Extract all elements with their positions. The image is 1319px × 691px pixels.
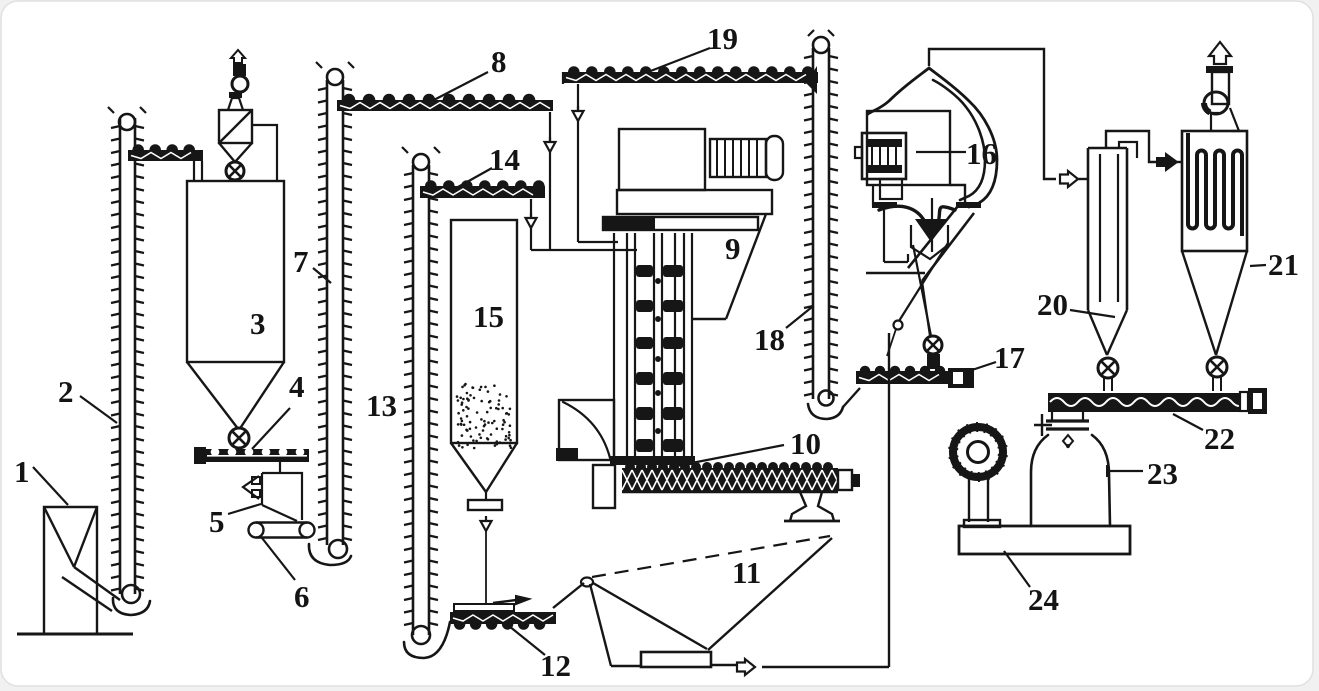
svg-text:7: 7 [293,244,309,279]
svg-text:3: 3 [250,306,266,341]
svg-text:18: 18 [754,322,785,357]
svg-text:19: 19 [707,21,738,56]
svg-text:10: 10 [790,426,821,461]
svg-text:9: 9 [725,231,741,266]
svg-text:24: 24 [1028,582,1059,617]
svg-text:12: 12 [540,648,571,683]
svg-text:1: 1 [14,454,30,489]
svg-text:14: 14 [489,142,520,177]
svg-text:6: 6 [294,579,310,614]
svg-text:22: 22 [1204,421,1235,456]
svg-text:2: 2 [58,374,74,409]
svg-text:17: 17 [994,340,1025,375]
svg-text:20: 20 [1037,287,1068,322]
svg-text:21: 21 [1268,247,1299,282]
svg-text:15: 15 [473,299,504,334]
svg-text:23: 23 [1147,456,1178,491]
svg-text:8: 8 [491,44,507,79]
svg-text:11: 11 [732,555,761,590]
svg-text:4: 4 [289,369,305,404]
svg-text:5: 5 [209,504,225,539]
svg-text:13: 13 [366,388,397,423]
